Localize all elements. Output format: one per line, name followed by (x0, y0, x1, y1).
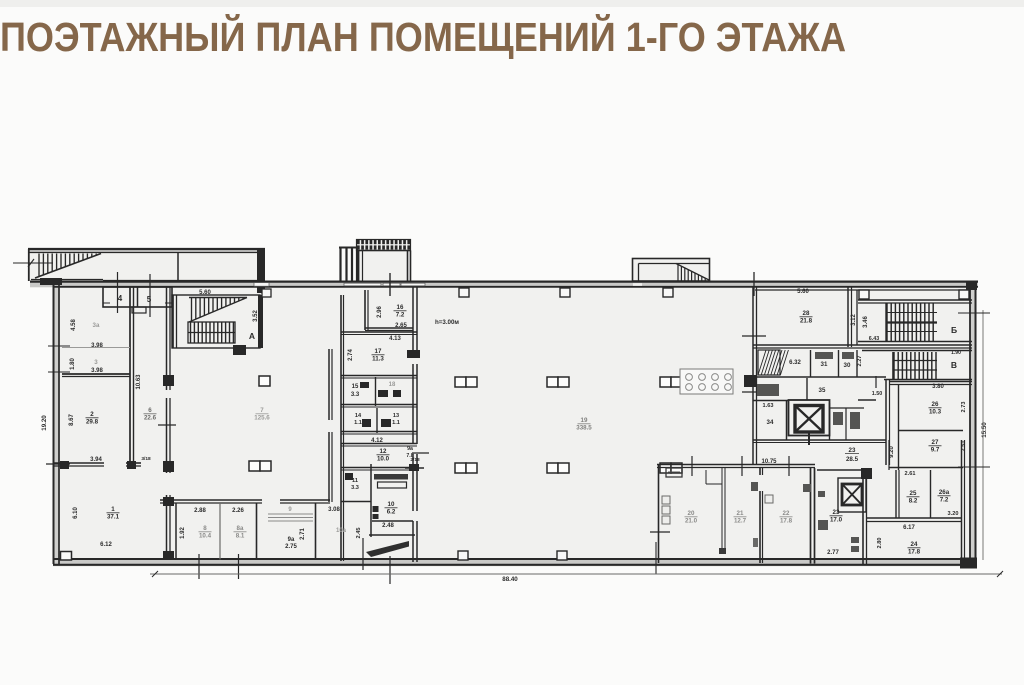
svg-text:2.74: 2.74 (348, 349, 354, 361)
svg-text:3.12: 3.12 (851, 314, 857, 326)
svg-text:19: 19 (581, 417, 588, 424)
svg-text:10.4: 10.4 (199, 533, 212, 540)
svg-text:4.58: 4.58 (71, 319, 77, 331)
svg-text:1.1: 1.1 (354, 420, 362, 426)
svg-text:1.63: 1.63 (763, 403, 774, 409)
svg-text:6.43: 6.43 (869, 336, 880, 342)
svg-text:h=3.00м: h=3.00м (435, 319, 459, 326)
svg-text:10.63: 10.63 (136, 374, 142, 390)
svg-text:2.96: 2.96 (377, 306, 383, 318)
svg-text:34: 34 (767, 419, 774, 426)
svg-text:7.2: 7.2 (940, 497, 949, 504)
svg-text:6.17: 6.17 (903, 525, 915, 531)
svg-text:9а: 9а (288, 537, 295, 543)
svg-text:125.6: 125.6 (254, 415, 270, 422)
svg-text:37.1: 37.1 (107, 514, 120, 521)
svg-text:17.8: 17.8 (780, 518, 793, 525)
svg-text:3.98: 3.98 (91, 368, 103, 374)
svg-text:9а: 9а (407, 446, 413, 452)
svg-text:2.88: 2.88 (194, 508, 206, 514)
svg-text:3: 3 (94, 359, 98, 366)
svg-text:4: 4 (118, 294, 123, 303)
svg-text:8.1: 8.1 (236, 533, 245, 540)
svg-text:26а: 26а (939, 489, 950, 496)
svg-text:6: 6 (148, 407, 152, 414)
svg-text:1.50: 1.50 (872, 391, 883, 397)
svg-text:2.71: 2.71 (300, 528, 306, 540)
svg-text:14: 14 (355, 413, 362, 419)
svg-text:21: 21 (737, 510, 744, 517)
svg-text:10.75: 10.75 (761, 459, 777, 465)
svg-text:17.8: 17.8 (908, 549, 921, 556)
svg-text:6.2: 6.2 (387, 509, 396, 516)
svg-text:2.27: 2.27 (857, 356, 863, 367)
svg-text:5.60: 5.60 (797, 289, 809, 295)
svg-text:2.65: 2.65 (395, 323, 407, 329)
svg-text:3/18: 3/18 (141, 456, 151, 462)
svg-text:3.08: 3.08 (328, 507, 340, 513)
svg-text:3.20: 3.20 (948, 511, 959, 517)
svg-text:25: 25 (910, 490, 917, 497)
svg-text:6.10: 6.10 (73, 507, 79, 519)
svg-text:3.98: 3.98 (91, 343, 103, 349)
svg-text:338.5: 338.5 (576, 425, 592, 432)
svg-text:2.26: 2.26 (232, 508, 244, 514)
svg-text:7: 7 (260, 407, 264, 414)
svg-text:11.3: 11.3 (372, 356, 384, 363)
svg-text:3.80: 3.80 (932, 384, 944, 390)
svg-text:8.2: 8.2 (909, 498, 918, 505)
svg-text:27: 27 (932, 439, 939, 446)
svg-text:9.7: 9.7 (931, 447, 940, 454)
svg-text:2.73: 2.73 (961, 402, 967, 413)
svg-text:2: 2 (90, 411, 94, 418)
svg-text:28.5: 28.5 (846, 456, 859, 463)
svg-text:8: 8 (203, 525, 207, 532)
svg-text:22: 22 (783, 510, 790, 517)
svg-text:29.8: 29.8 (86, 419, 99, 426)
svg-text:21.0: 21.0 (685, 518, 698, 525)
svg-text:А: А (249, 331, 255, 341)
svg-text:19.20: 19.20 (41, 415, 48, 431)
svg-text:8а: 8а (237, 525, 244, 532)
svg-text:2.45: 2.45 (356, 528, 362, 539)
svg-text:10: 10 (388, 501, 395, 508)
svg-text:10.0: 10.0 (377, 456, 390, 463)
svg-text:2.48: 2.48 (382, 523, 394, 529)
svg-text:В: В (951, 360, 957, 370)
svg-text:12: 12 (380, 448, 387, 455)
svg-text:12.7: 12.7 (734, 518, 747, 525)
svg-text:7.2: 7.2 (396, 312, 405, 319)
svg-text:3а: 3а (93, 322, 100, 329)
svg-text:3.52: 3.52 (253, 310, 259, 322)
svg-text:28: 28 (803, 310, 810, 317)
svg-text:13: 13 (393, 413, 399, 419)
svg-text:18: 18 (389, 382, 396, 388)
svg-text:8.67: 8.67 (69, 414, 75, 426)
svg-text:5: 5 (147, 295, 152, 304)
svg-text:Б: Б (951, 325, 957, 335)
svg-text:2.75: 2.75 (285, 544, 297, 550)
svg-text:3.3: 3.3 (351, 485, 359, 491)
svg-text:3.94: 3.94 (90, 457, 102, 463)
svg-text:5.60: 5.60 (199, 290, 211, 296)
svg-text:17: 17 (375, 348, 382, 355)
svg-text:23: 23 (849, 447, 856, 454)
svg-text:1: 1 (111, 506, 115, 513)
svg-text:22.6: 22.6 (144, 415, 157, 422)
svg-text:2/18: 2/18 (410, 457, 420, 463)
svg-text:2.80: 2.80 (877, 538, 883, 549)
svg-text:31: 31 (821, 361, 828, 368)
svg-text:3.46: 3.46 (863, 316, 869, 328)
svg-text:3.3: 3.3 (351, 392, 360, 398)
svg-text:16: 16 (397, 304, 404, 311)
svg-text:17.0: 17.0 (830, 517, 843, 524)
svg-text:21.8: 21.8 (800, 318, 813, 325)
svg-text:2.77: 2.77 (827, 550, 839, 556)
svg-text:10а: 10а (336, 528, 347, 534)
svg-text:4.13: 4.13 (389, 336, 401, 342)
svg-text:88.40: 88.40 (502, 576, 518, 583)
svg-text:35: 35 (819, 387, 826, 394)
svg-text:1.92: 1.92 (180, 527, 186, 539)
svg-text:2.61: 2.61 (905, 471, 916, 477)
svg-text:1.90: 1.90 (951, 350, 961, 356)
svg-text:15.50: 15.50 (981, 422, 988, 438)
svg-text:9.20: 9.20 (889, 446, 895, 458)
svg-text:15: 15 (352, 384, 359, 390)
svg-text:30: 30 (844, 362, 851, 369)
svg-text:10.3: 10.3 (929, 409, 942, 416)
svg-text:1.80: 1.80 (70, 358, 76, 370)
svg-text:24: 24 (911, 541, 918, 548)
svg-text:20: 20 (688, 510, 695, 517)
svg-text:1.1: 1.1 (392, 420, 400, 426)
svg-text:6.32: 6.32 (789, 360, 801, 366)
svg-text:6.12: 6.12 (100, 542, 112, 548)
svg-text:26: 26 (932, 401, 939, 408)
